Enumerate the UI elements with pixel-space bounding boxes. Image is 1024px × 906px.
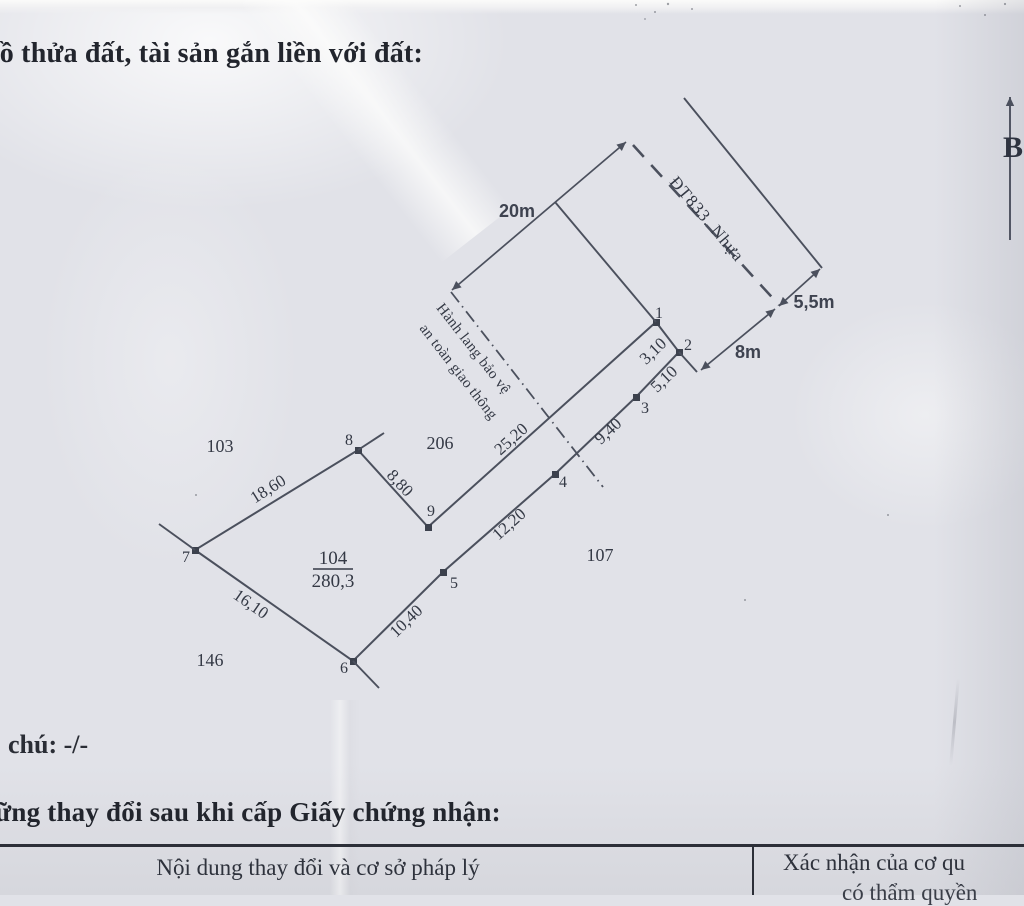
dim-text-5-5m: 5,5m — [793, 292, 834, 312]
paper-specks — [195, 3, 1006, 601]
edge-dim-v6-v7: 16,10 — [230, 585, 272, 623]
edge-dim-v7-v8: 18,60 — [247, 471, 290, 507]
edge-dim-v1-v2: 3,10 — [636, 334, 671, 368]
parcel-area: 280,3 — [312, 571, 355, 592]
parcel-number: 104 — [319, 548, 348, 569]
edge-dim-v2-v3: 5,10 — [647, 362, 682, 396]
neighbor-boundary-extensions — [159, 433, 384, 688]
edge-dim-v5-v6: 10,40 — [386, 601, 427, 641]
parcel-number-area: 104 280,3 — [312, 548, 355, 592]
vertex-label-5: 5 — [450, 575, 458, 592]
north-label: B — [1003, 131, 1023, 164]
vertex-label-7: 7 — [182, 549, 190, 566]
cadastral-diagram: B ĐT833. Nhựa Hành lang bảo vệ an toàn g… — [0, 0, 1024, 895]
road-name-label: ĐT833. Nhựa — [666, 173, 748, 266]
dim-line-20m — [452, 142, 626, 290]
edge-dim-v4-v5: 12,20 — [488, 504, 529, 544]
edge-dim-v8-v9: 8,80 — [383, 466, 417, 501]
vertex-label-6: 6 — [340, 660, 348, 677]
dim-text-8m: 8m — [735, 342, 761, 362]
vertex-label-2: 2 — [684, 337, 692, 354]
vertex-label-4: 4 — [559, 474, 567, 491]
vertex-label-8: 8 — [345, 432, 353, 449]
road-edge-far — [684, 98, 822, 268]
neighbor-parcel-206: 206 — [427, 433, 454, 453]
vertex-label-9: 9 — [427, 503, 435, 520]
north-arrow: B — [1003, 97, 1023, 240]
neighbor-parcel-107: 107 — [587, 545, 614, 565]
neighbor-parcel-103: 103 — [207, 436, 234, 456]
vertex-label-3: 3 — [641, 400, 649, 417]
vertex-label-1: 1 — [655, 305, 663, 322]
neighbor-parcel-146: 146 — [197, 650, 224, 670]
dim-text-20m: 20m — [499, 201, 535, 221]
scanned-certificate-page: đồ thửa đất, tài sản gắn liền với đất: c… — [0, 0, 1024, 895]
edge-dim-v3-v4: 9,40 — [591, 414, 626, 448]
